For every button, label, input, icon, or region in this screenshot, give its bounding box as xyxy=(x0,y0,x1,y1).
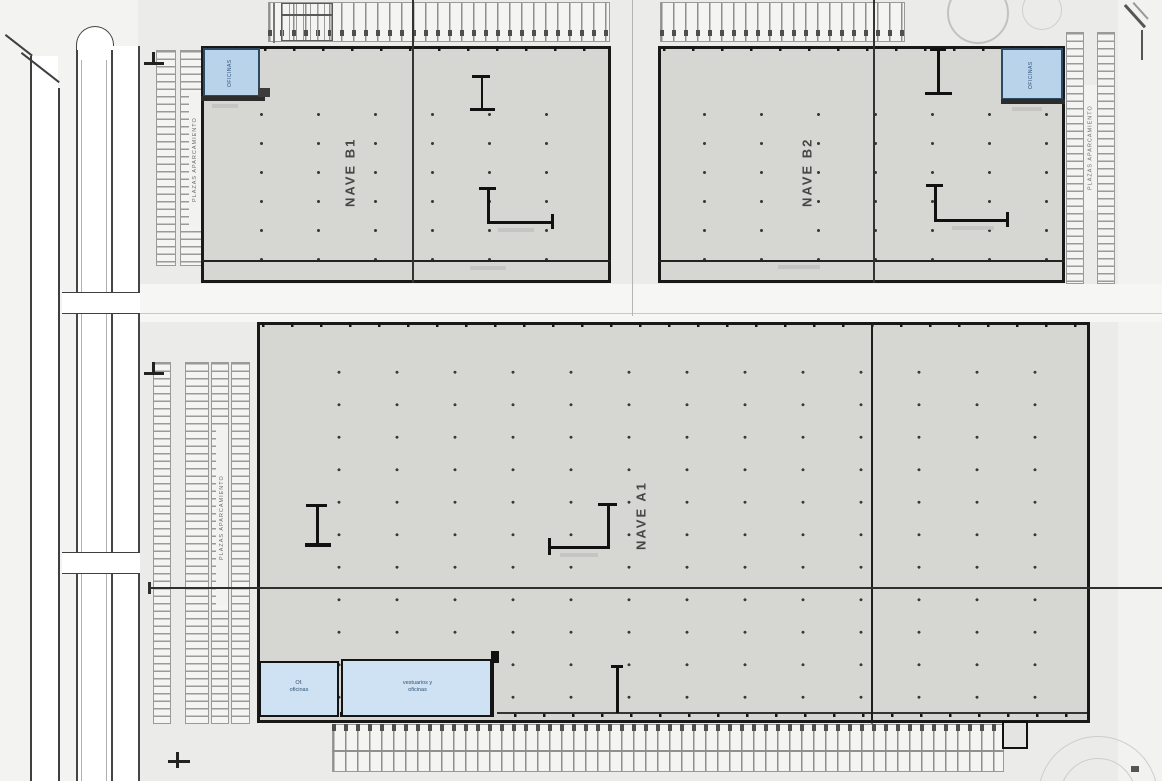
parking-label-left-a1: PLAZAS APARCAMIENTO xyxy=(216,430,228,605)
parking-col-b2-right-1 xyxy=(1066,32,1084,284)
wall-b2-L-v xyxy=(934,186,937,219)
wall-a1-mid-h xyxy=(548,546,610,549)
entrance-junction-top xyxy=(62,292,140,314)
wall-b1-top-cap1 xyxy=(472,75,490,78)
dock-line-a1-bottom xyxy=(497,712,1087,714)
site-boundary-seg3 xyxy=(138,574,140,781)
wall-a1-mid-cap-top xyxy=(598,503,617,506)
dim-tick-b1-v xyxy=(152,52,155,64)
column-grid-dots-b2 xyxy=(668,92,1058,277)
dock-ticks-a1-top xyxy=(262,322,1085,327)
hall-b2-label: NAVE B2 xyxy=(792,112,822,232)
parking-rail-bottom-a1 xyxy=(332,750,1004,752)
mid-road-line xyxy=(140,313,1162,314)
gatehouse-bar xyxy=(281,14,333,16)
wall-b2-L-h xyxy=(934,219,1008,222)
wall-b1-L-h xyxy=(487,221,553,224)
survey-mark-v xyxy=(176,752,179,768)
wall-a1-bottom-stub xyxy=(616,667,619,713)
gatehouse-stub-line xyxy=(273,3,275,43)
survey-mark-h xyxy=(168,760,190,763)
office-box-b2-label: OFICINAS xyxy=(1025,55,1037,95)
site-boundary-seg1 xyxy=(138,46,140,292)
ibeam-wall-a1-v xyxy=(316,506,319,544)
wall-b2-dim-smudge xyxy=(952,226,994,230)
site-plan-canvas: PLAZAS APARCAMIENTO PLAZAS APARCAMIENTO … xyxy=(0,0,1162,781)
road-median-arch xyxy=(76,26,114,52)
parking-col-b1-left-1 xyxy=(156,50,176,266)
road-left-diagonal-a xyxy=(5,34,33,57)
wall-a1-dim-smudge xyxy=(560,553,598,557)
site-boundary-seg2 xyxy=(138,314,140,552)
grid-line-b2 xyxy=(873,0,875,283)
room-a1-right-text: vestuarios y oficinas xyxy=(360,672,475,702)
wall-b1-L-endcap xyxy=(551,214,554,229)
wall-b2-L-endcap xyxy=(1006,212,1009,227)
column-grid-dots-a1 xyxy=(300,348,1080,710)
office-b2-slab xyxy=(1001,99,1065,104)
canopy-line-b1 xyxy=(201,260,611,262)
wall-a1-mid-leftcap xyxy=(548,538,551,555)
wall-b2-L-cap xyxy=(926,184,943,187)
section-line-left-jog xyxy=(148,582,151,594)
wall-b2-top-cap1 xyxy=(930,48,946,51)
canopy-line-b2 xyxy=(658,260,1065,262)
room-a1-left-text: Of. oficinas xyxy=(263,672,335,702)
road-median-innerline-right xyxy=(106,60,107,781)
ibeam-wall-a1-cap-top xyxy=(306,504,327,507)
section-line xyxy=(150,587,1162,589)
right-edge-line xyxy=(1141,30,1143,60)
wall-a1-bottom-stub-cap xyxy=(611,665,623,668)
firewall-line-a1 xyxy=(871,322,873,723)
wall-b1-L-v xyxy=(487,189,490,223)
parking-col-a1-left-2 xyxy=(185,362,209,724)
dim-tick-a1-v xyxy=(152,362,155,374)
parking-col-b2-right-2 xyxy=(1097,32,1115,284)
room-a1-wall-riser xyxy=(491,651,499,663)
road-median-border-left xyxy=(76,50,78,781)
office-b1-dim-smudge xyxy=(212,104,238,108)
road-left-line-b xyxy=(58,88,60,781)
right-margin-ground xyxy=(1118,0,1162,781)
mid-road-band xyxy=(138,284,1162,322)
gap-line-b1-b2 xyxy=(632,0,633,316)
room-a1-right-line1: vestuarios y xyxy=(403,680,432,687)
hall-b1-label: NAVE B1 xyxy=(335,112,365,232)
b1-bottom-dim-smudge xyxy=(470,266,506,270)
parking-row-bottom-a1 xyxy=(332,724,1004,772)
parking-label-right-b2: PLAZAS APARCAMIENTO xyxy=(1084,85,1097,210)
grid-line-b1 xyxy=(412,0,414,283)
wall-b1-top-cap2 xyxy=(470,108,495,111)
room-a1-left-line2: oficinas xyxy=(290,687,309,694)
office-b2-dim-smudge xyxy=(1012,107,1042,111)
hall-a1-label: NAVE A1 xyxy=(626,456,656,576)
office-box-b1-label: OFICINAS xyxy=(224,54,236,92)
b2-bottom-dim-smudge xyxy=(778,265,820,269)
parking-col-a1-left-4 xyxy=(231,362,250,724)
gatehouse-structure xyxy=(281,3,333,41)
road-access-lane xyxy=(113,46,138,781)
parking-bumpers-bottom-a1 xyxy=(332,724,1004,731)
parking-col-a1-left-1 xyxy=(153,362,171,724)
wall-b1-dim-smudge xyxy=(498,228,534,232)
room-a1-right-line2: oficinas xyxy=(408,687,427,694)
office-b1-step xyxy=(258,88,270,97)
entrance-junction-bottom xyxy=(62,552,140,574)
parking-row-top-b2 xyxy=(660,2,905,42)
wall-b1-top-v xyxy=(481,77,483,109)
room-a1-left-line1: Of. xyxy=(295,680,302,687)
wall-b2-top-cap2 xyxy=(925,92,952,95)
road-left-lane xyxy=(32,56,58,781)
dock-ticks-b1-top xyxy=(206,46,606,51)
wall-a1-mid-v xyxy=(607,505,610,549)
wall-b1-L-cap xyxy=(479,187,496,190)
road-left-line-a xyxy=(30,56,32,781)
office-b1-slab xyxy=(201,96,265,101)
wall-b2-top-v xyxy=(937,50,940,93)
annex-box xyxy=(1002,721,1028,749)
parking-label-left-b1: PLAZAS APARCAMIENTO xyxy=(189,92,201,227)
road-median-innerline-left xyxy=(81,60,82,781)
ibeam-wall-a1-cap-bottom xyxy=(305,543,331,547)
bottom-right-marker xyxy=(1131,766,1139,772)
parking-bumpers-top-b2 xyxy=(660,30,905,36)
